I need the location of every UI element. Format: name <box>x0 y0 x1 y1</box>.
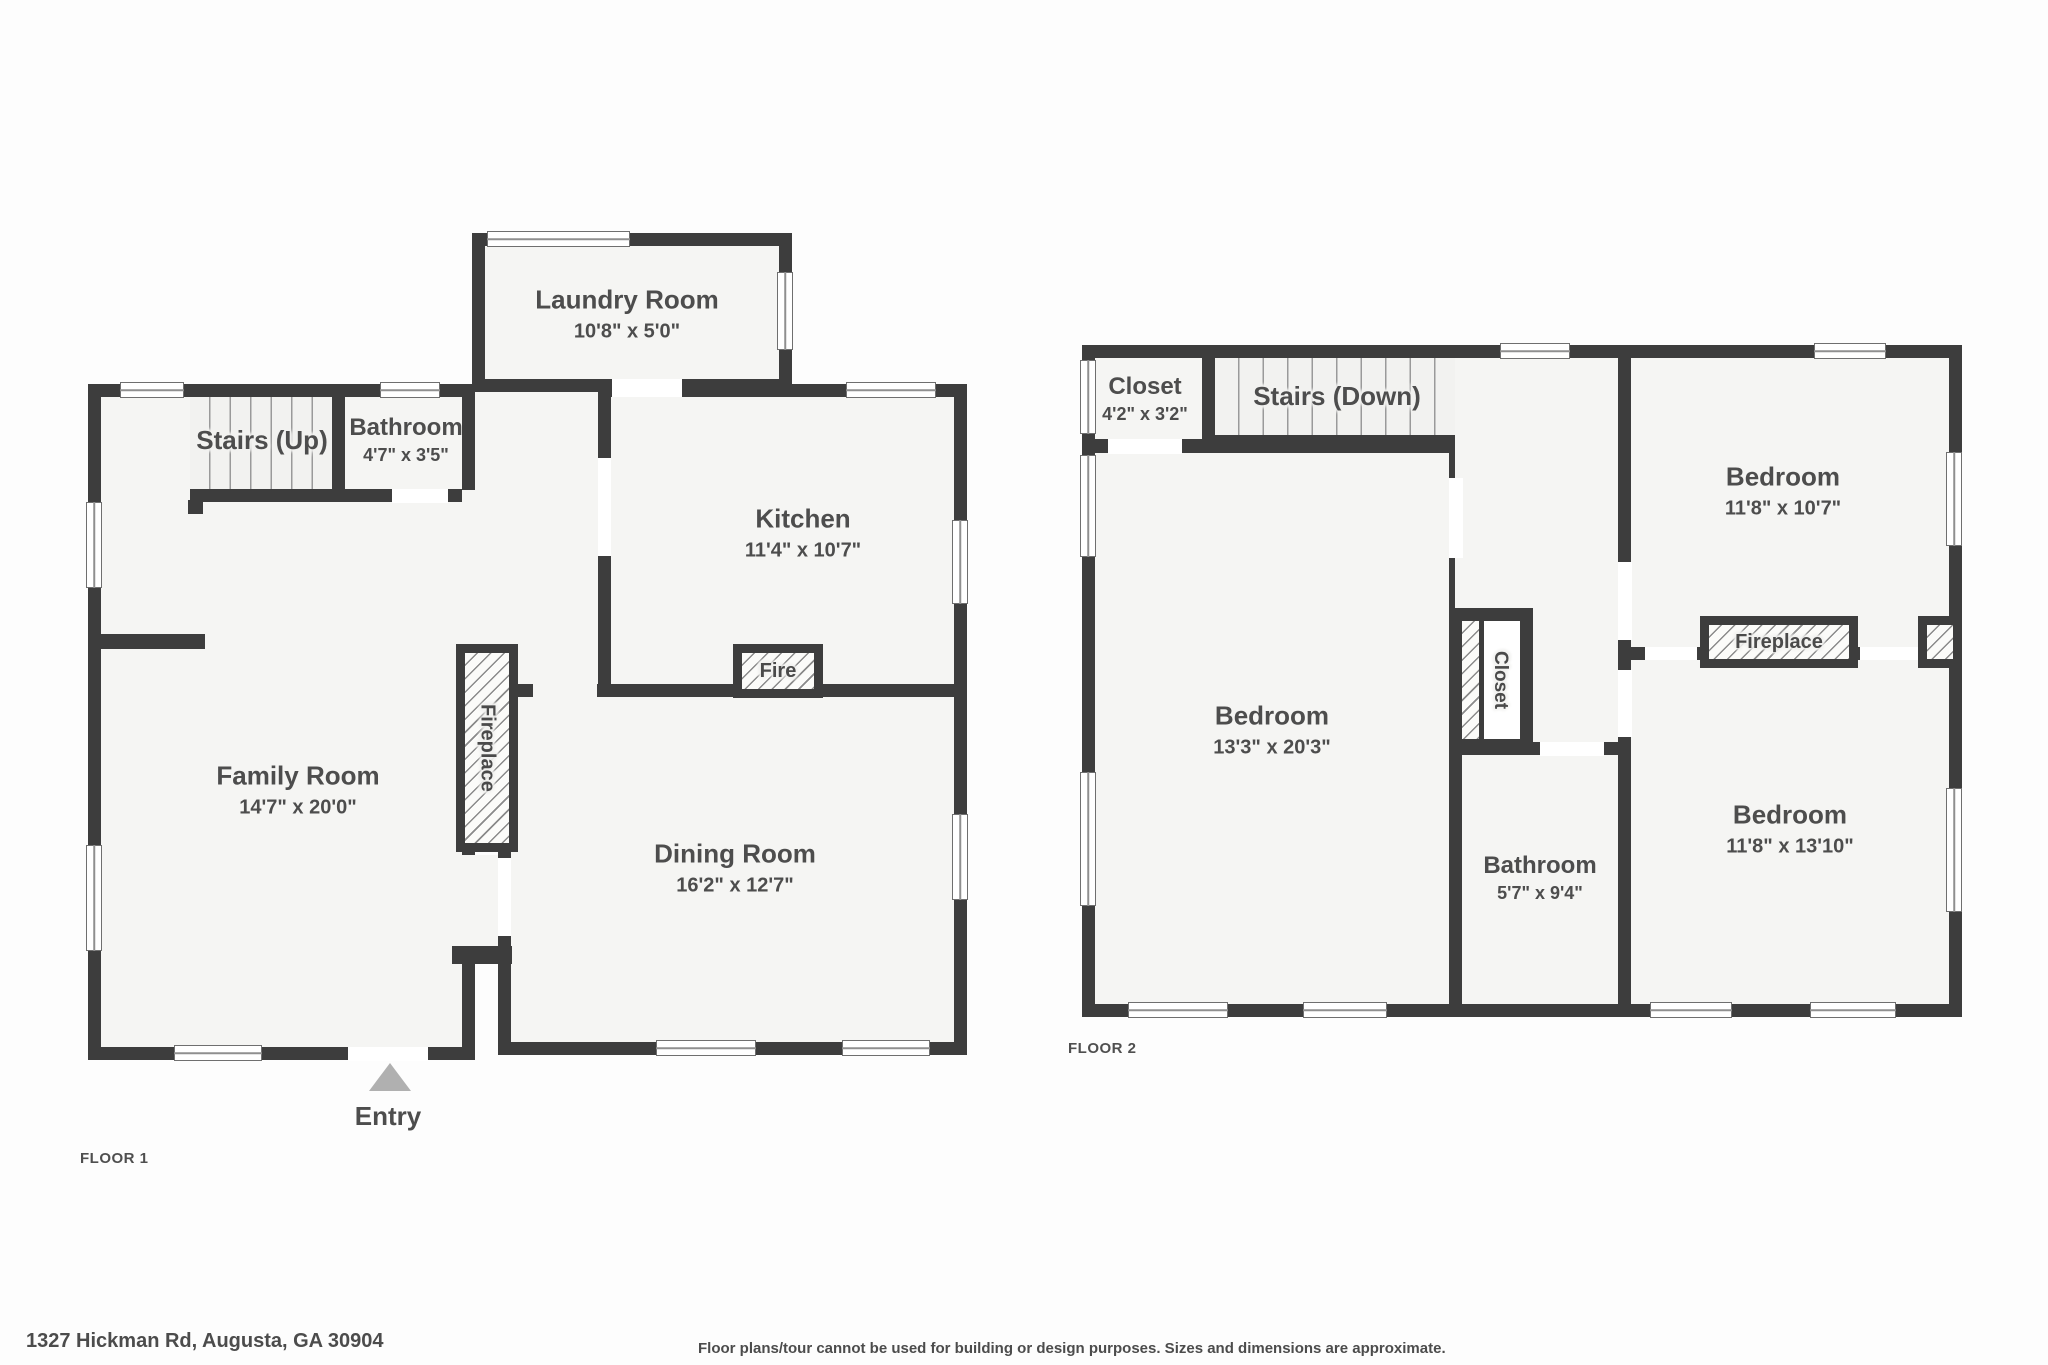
wall-segment <box>452 946 512 964</box>
door-opening <box>1108 439 1182 454</box>
corridor-floor <box>475 392 598 684</box>
window <box>487 231 630 247</box>
fireplace-f2-label: Fireplace <box>1735 631 1823 654</box>
window <box>86 502 102 588</box>
kitchen-label: Kitchen 11'4" x 10'7" <box>745 503 861 564</box>
family-label: Family Room 14'7" x 20'0" <box>216 760 379 821</box>
window <box>1814 343 1886 359</box>
window <box>777 272 793 350</box>
door-opening <box>348 1047 428 1061</box>
window <box>656 1040 756 1056</box>
door-opening <box>1618 670 1632 737</box>
door-hatch <box>1918 616 1962 668</box>
window <box>1650 1002 1732 1018</box>
window <box>1500 343 1570 359</box>
bedroom-bottom-label: Bedroom 11'8" x 13'10" <box>1726 799 1853 860</box>
fireplace: Fireplace <box>1700 616 1858 668</box>
floor1-label: FLOOR 1 <box>80 1150 149 1167</box>
window <box>952 520 968 604</box>
window <box>846 382 936 398</box>
wall-segment <box>88 634 205 649</box>
closet-top-label: Closet 4'2" x 3'2" <box>1102 371 1188 427</box>
stairs-up-label: Stairs (Up) <box>196 424 327 458</box>
floor2-label: FLOOR 2 <box>1068 1040 1137 1057</box>
door-opening <box>612 379 682 397</box>
door-opening <box>598 458 611 556</box>
closet-door-hatch <box>1462 621 1484 739</box>
address-text: 1327 Hickman Rd, Augusta, GA 30904 <box>26 1330 384 1353</box>
bedroom-top-label: Bedroom 11'8" x 10'7" <box>1725 461 1841 522</box>
window <box>1946 788 1962 912</box>
floorplan-canvas: Fireplace Fire Laundry Room 10'8" x 5'0"… <box>0 0 2048 1365</box>
door-opening <box>1540 742 1604 756</box>
door-opening <box>1860 647 1918 660</box>
window <box>1080 772 1096 906</box>
laundry-label: Laundry Room 10'8" x 5'0" <box>535 284 718 345</box>
bathroom-f1-label: Bathroom 4'7" x 3'5" <box>349 412 462 468</box>
window <box>86 845 102 951</box>
bathroom-f2-label: Bathroom 5'7" x 9'4" <box>1483 850 1596 906</box>
window <box>380 382 440 398</box>
window <box>1128 1002 1228 1018</box>
window <box>952 814 968 900</box>
disclaimer-text: Floor plans/tour cannot be used for buil… <box>698 1340 1446 1357</box>
window <box>1303 1002 1387 1018</box>
vestibule-floor <box>462 855 498 948</box>
window <box>1946 452 1962 546</box>
door-opening <box>1449 478 1463 558</box>
fire-label: Fire <box>760 660 797 683</box>
window <box>1080 455 1096 557</box>
fireplace-label: Fireplace <box>476 704 499 792</box>
window <box>1810 1002 1896 1018</box>
entry-label: Entry <box>355 1100 421 1134</box>
fireplace: Fireplace <box>456 644 518 852</box>
closet-mid-label: Closet <box>1489 651 1511 709</box>
window <box>1080 360 1096 434</box>
bedroom-left-label: Bedroom 13'3" x 20'3" <box>1213 700 1330 761</box>
dining-label: Dining Room 16'2" x 12'7" <box>654 838 816 899</box>
entry-arrow-icon <box>369 1063 411 1091</box>
door-opening <box>498 858 511 936</box>
wall-segment <box>188 500 203 514</box>
dining-opening <box>533 684 597 698</box>
door-opening <box>1618 562 1632 640</box>
window <box>842 1040 930 1056</box>
door-opening <box>392 489 448 503</box>
window <box>174 1045 262 1061</box>
window <box>120 382 184 398</box>
fire-box: Fire <box>733 644 823 698</box>
family-opening <box>462 490 475 648</box>
door-opening <box>1645 647 1697 660</box>
stairs-down-label: Stairs (Down) <box>1253 380 1421 414</box>
